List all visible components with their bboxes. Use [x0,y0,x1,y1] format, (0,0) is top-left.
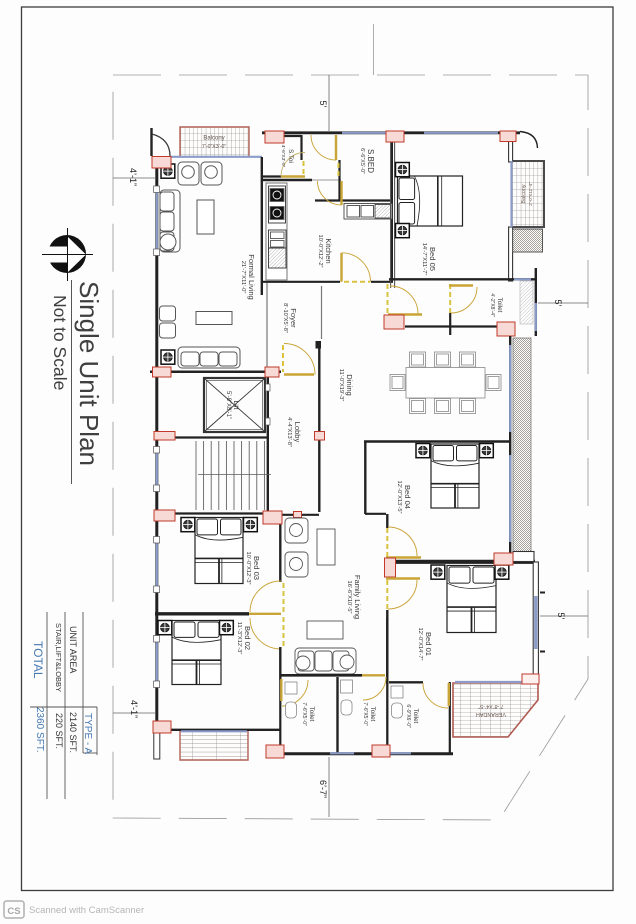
svg-text:7’-8”X4’-5”: 7’-8”X4’-5” [478,703,503,709]
svg-text:UNIT AREA: UNIT AREA [68,626,78,673]
svg-text:7’-6”X5’-0”: 7’-6”X5’-0” [362,702,368,726]
svg-text:6’-7”: 6’-7” [318,780,328,798]
svg-text:CS: CS [7,906,20,917]
svg-text:Toilet: Toilet [412,709,419,724]
svg-text:4’-4”X13’-8”: 4’-4”X13’-8” [286,417,292,447]
svg-text:Toilet: Toilet [496,298,503,313]
svg-text:Bed 01: Bed 01 [424,632,433,656]
svg-text:Family Living: Family Living [353,575,362,619]
svg-text:Bed 03: Bed 03 [252,556,261,580]
svg-text:4’-6”X3’-0”: 4’-6”X3’-0” [280,145,286,168]
svg-text:Scanned with CamScanner: Scanned with CamScanner [29,905,144,916]
svg-text:2’-0”X11’-4”: 2’-0”X11’-4” [528,182,533,206]
svg-text:Kitchen: Kitchen [324,238,333,263]
svg-text:2140 SFT.: 2140 SFT. [68,712,78,753]
svg-text:Toilet: Toilet [308,707,315,722]
svg-text:6’-6”X5’-0”: 6’-6”X5’-0” [359,148,365,174]
svg-text:5’: 5’ [553,299,563,306]
svg-text:12’-0”X13’-5”: 12’-0”X13’-5” [396,481,402,514]
svg-text:7’-6”X5’-0”: 7’-6”X5’-0” [301,702,307,726]
svg-text:Foyer: Foyer [289,308,298,328]
svg-text:Bed 02: Bed 02 [243,626,252,650]
svg-text:Single Unit Plan: Single Unit Plan [74,281,104,466]
svg-text:4’-1”: 4’-1” [129,700,139,718]
svg-text:16’-6”X10’-5”: 16’-6”X10’-5” [346,581,352,614]
svg-text:Bed 05: Bed 05 [428,247,437,271]
svg-text:6’-9”X6’-0”: 6’-9”X6’-0” [405,704,411,728]
svg-text:5’: 5’ [556,612,566,619]
svg-text:8’-10”X5’-8”: 8’-10”X5’-8” [282,303,288,333]
svg-text:7’-0”X3’-0”: 7’-0”X3’-0” [202,144,226,150]
svg-text:14’-7”X11’-7”: 14’-7”X11’-7” [421,243,427,276]
svg-text:VERANDAH: VERANDAH [476,711,506,717]
svg-text:4’-2”X8’-4”: 4’-2”X8’-4” [489,293,495,317]
svg-text:Bed 04: Bed 04 [403,485,412,509]
svg-text:11’-0”X19’-3”: 11’-0”X19’-3” [338,369,344,402]
svg-text:Toilet: Toilet [369,707,376,722]
svg-text:S.Toi: S.Toi [287,149,294,163]
svg-text:11’-3”X12’-3”: 11’-3”X12’-3” [236,622,242,655]
svg-text:TYPE - A: TYPE - A [82,713,93,754]
svg-text:Balcony: Balcony [521,184,527,203]
svg-text:STAIR,LIFT&LOBBY: STAIR,LIFT&LOBBY [54,623,63,692]
svg-text:Balcony: Balcony [203,136,224,142]
svg-text:21’-7”X11’-0”: 21’-7”X11’-0” [240,261,246,294]
svg-text:220 SFT.: 220 SFT. [54,713,64,749]
svg-text:2360 SFT.: 2360 SFT. [34,707,45,753]
svg-text:Dining: Dining [345,374,354,396]
svg-text:4’-1”: 4’-1” [128,168,138,186]
svg-text:5’-8”X8’-1”: 5’-8”X8’-1” [225,391,231,419]
svg-text:TOTAL: TOTAL [31,641,45,679]
svg-text:12’-0”X14’-7”: 12’-0”X14’-7” [417,628,423,661]
svg-text:Formal Living: Formal Living [247,254,256,300]
svg-text:S.BED: S.BED [366,149,375,173]
svg-text:Lobby: Lobby [293,422,302,443]
svg-text:10’-0”X12’-2”: 10’-0”X12’-2” [317,235,323,268]
svg-text:Not to Scale: Not to Scale [50,295,70,390]
svg-text:Lift: Lift [232,400,239,409]
svg-text:10’-0”X12’-3”: 10’-0”X12’-3” [245,552,251,585]
svg-text:5’: 5’ [318,100,328,107]
